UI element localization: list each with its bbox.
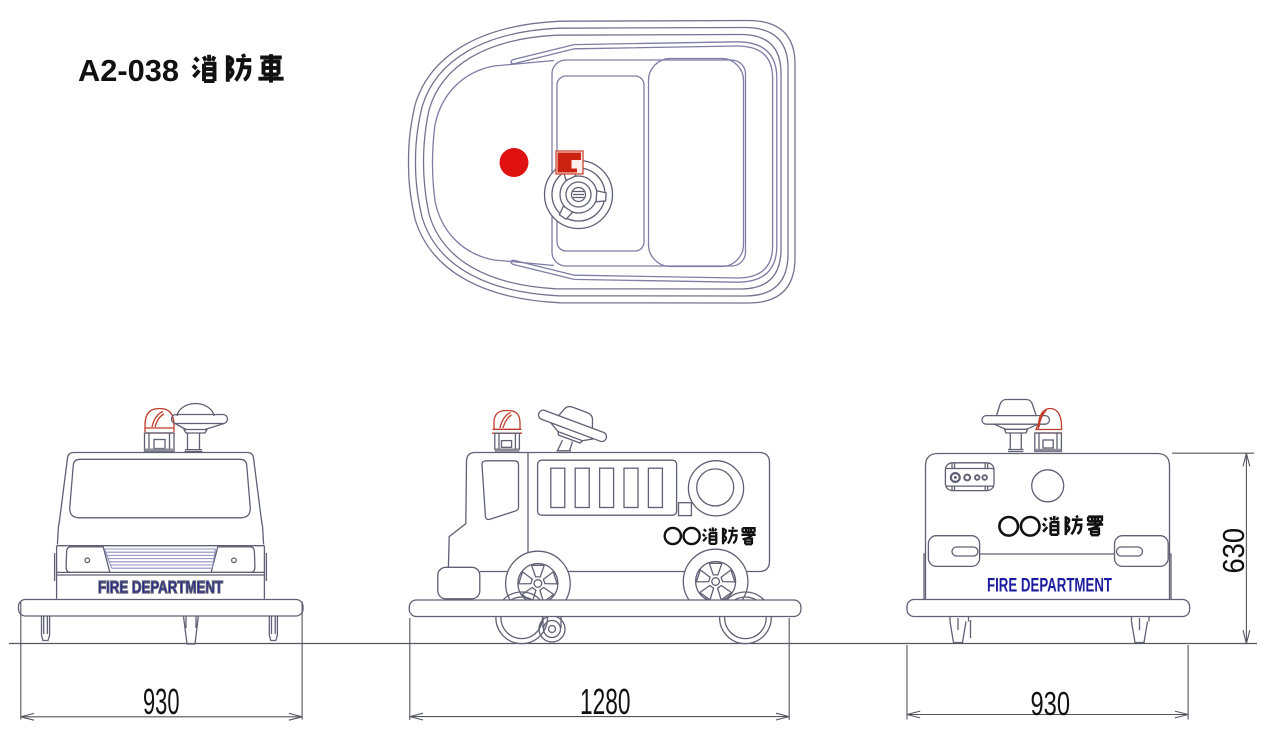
- svg-text:1280: 1280: [580, 681, 631, 722]
- svg-text:FIRE DEPARTMENT: FIRE DEPARTMENT: [987, 576, 1112, 597]
- svg-text:FIRE DEPARTMENT: FIRE DEPARTMENT: [98, 577, 223, 597]
- svg-text:630: 630: [1216, 528, 1251, 574]
- svg-text:A2-038: A2-038: [78, 53, 179, 88]
- svg-text:930: 930: [1031, 685, 1071, 722]
- svg-text:930: 930: [143, 681, 180, 722]
